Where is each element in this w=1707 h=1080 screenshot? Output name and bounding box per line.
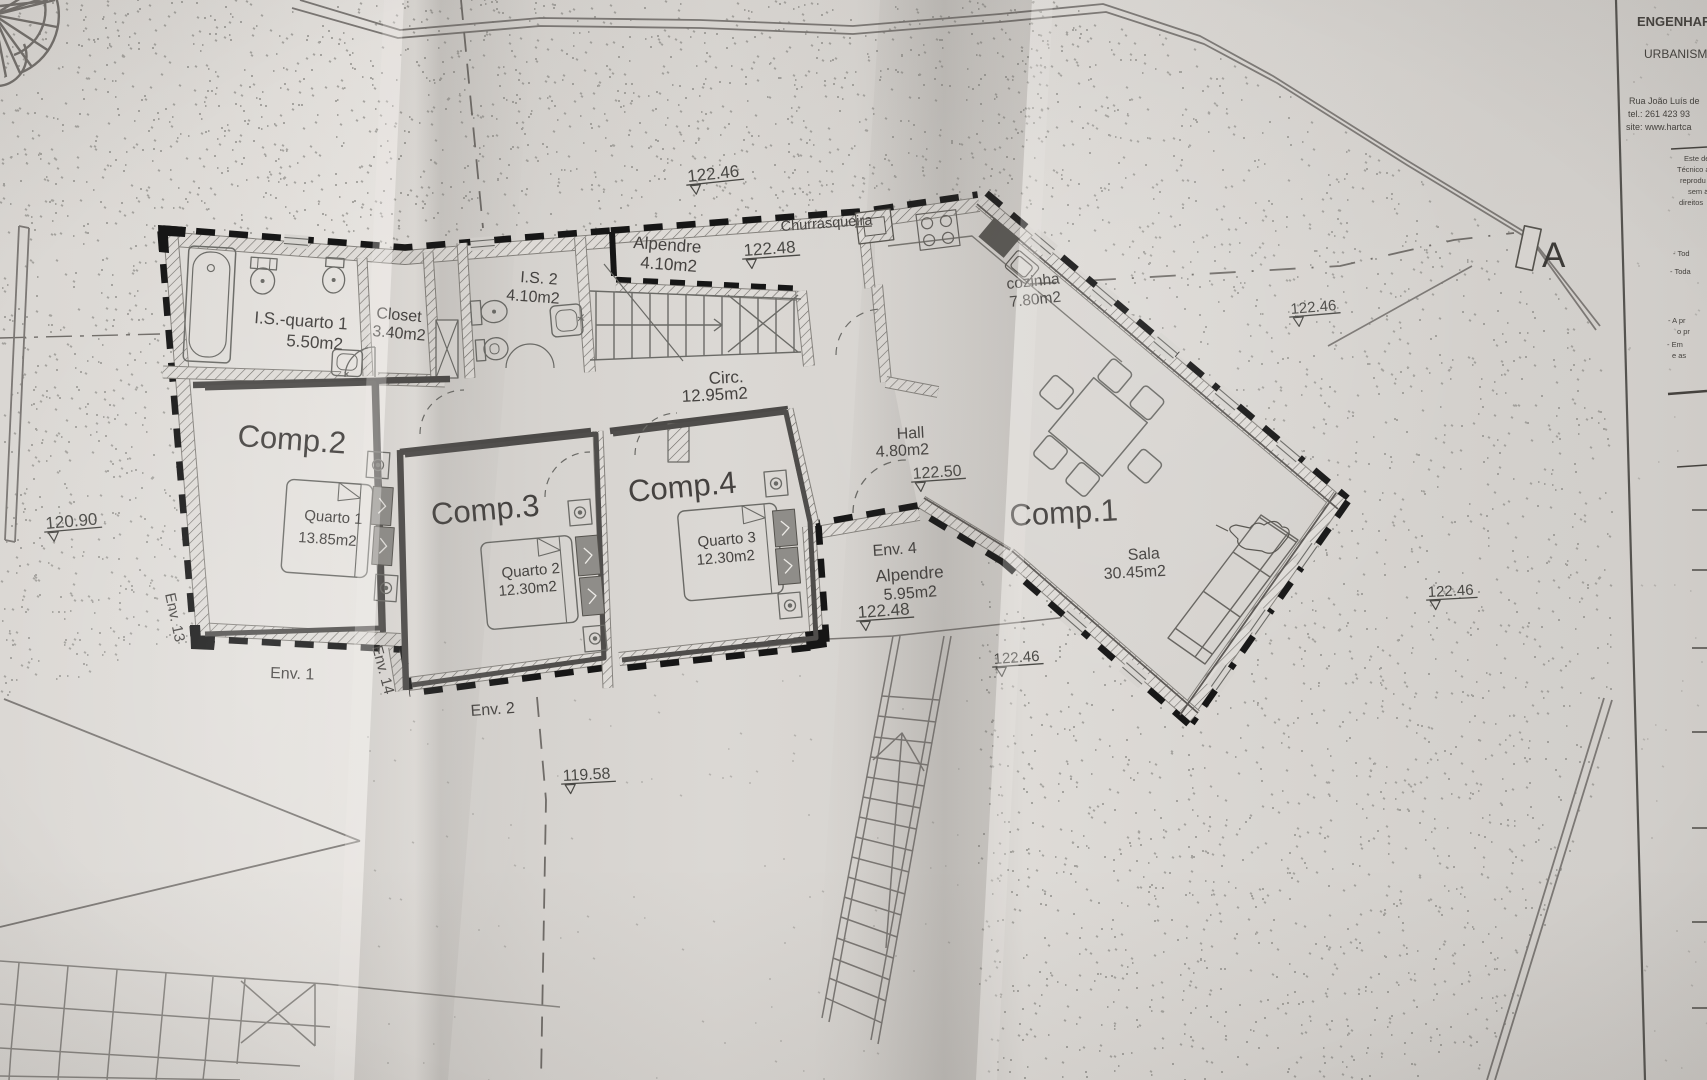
svg-text:- Toda: - Toda bbox=[1670, 267, 1692, 276]
svg-text:tel.: 261 423 93: tel.: 261 423 93 bbox=[1628, 109, 1690, 119]
svg-text:sem a: sem a bbox=[1688, 187, 1707, 196]
svg-text:- Em: - Em bbox=[1667, 340, 1683, 349]
svg-text:ENGENHARIA: ENGENHARIA bbox=[1637, 14, 1707, 29]
svg-text:URBANISMO: URBANISMO bbox=[1644, 47, 1707, 61]
svg-text:direitos: direitos bbox=[1679, 198, 1703, 207]
svg-text:Técnico a: Técnico a bbox=[1677, 165, 1707, 174]
svg-text:e as: e as bbox=[1672, 351, 1686, 360]
svg-text:Rua João Luís de: Rua João Luís de bbox=[1629, 96, 1700, 106]
svg-text:- A pr: - A pr bbox=[1668, 316, 1686, 325]
svg-text:site: www.hartca: site: www.hartca bbox=[1626, 122, 1692, 132]
svg-text:o pr: o pr bbox=[1677, 327, 1690, 336]
svg-text:Este de: Este de bbox=[1684, 154, 1707, 163]
svg-text:reprodu: reprodu bbox=[1680, 176, 1706, 185]
svg-text:- Tod: - Tod bbox=[1673, 249, 1690, 258]
